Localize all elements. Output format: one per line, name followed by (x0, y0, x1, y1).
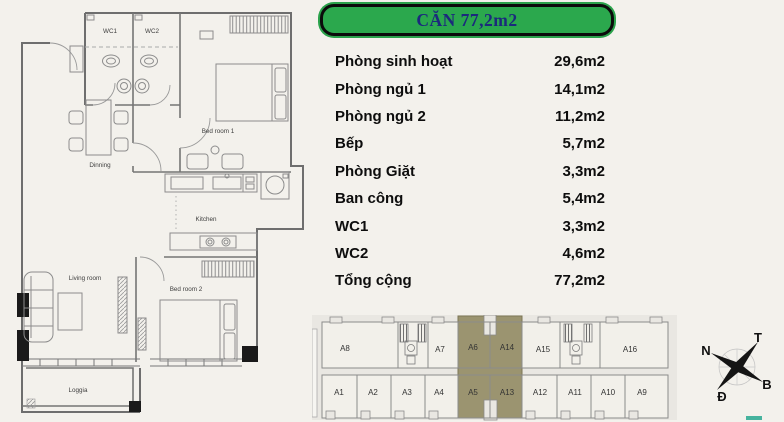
area-table: Phòng sinh hoạt 29,6m2 Phòng ngủ 1 14,1m… (322, 48, 614, 295)
unit-label-a5: A5 (468, 388, 478, 397)
room-label: Phòng ngủ 1 (322, 81, 426, 98)
room-area-value: 77,2m2 (554, 272, 614, 289)
unit-label-a6: A6 (468, 343, 478, 352)
apartment-floorplan: WC1 WC2 Bed room 1 Dinning Kitchen Livin… (0, 0, 310, 422)
room-label: Phòng Giặt (322, 163, 415, 180)
unit-label-a3: A3 (402, 388, 412, 397)
room-label-bedroom2: Bed room 2 (170, 286, 203, 293)
room-area-value: 5,7m2 (562, 135, 614, 152)
unit-title: CĂN 77,2m2 (416, 10, 517, 31)
compass-rose: N T B Đ (688, 325, 784, 422)
compass-label-d: Đ (717, 389, 726, 404)
unit-label-a12: A12 (533, 388, 548, 397)
compass-label-n: N (701, 343, 710, 358)
unit-label-a9: A9 (637, 388, 647, 397)
room-label-loggia: Loggia (69, 387, 88, 394)
room-label: Bếp (322, 135, 363, 152)
compass-label-t: T (754, 330, 762, 345)
room-area-value: 5,4m2 (562, 190, 614, 207)
room-label-wc1: WC1 (103, 28, 117, 35)
window-bands (22, 359, 242, 366)
room-area-value: 4,6m2 (562, 245, 614, 262)
area-table-row: Phòng Giặt 3,3m2 (322, 158, 614, 185)
unit-label-a8: A8 (340, 344, 350, 353)
area-table-row: Phòng sinh hoạt 29,6m2 (322, 48, 614, 75)
room-label-dinning: Dinning (89, 162, 111, 169)
area-table-row: WC2 4,6m2 (322, 240, 614, 267)
unit-title-badge: CĂN 77,2m2 (320, 4, 614, 36)
outer-walls (22, 13, 303, 412)
door-arcs (50, 43, 210, 281)
area-table-row: Tổng cộng 77,2m2 (322, 267, 614, 294)
unit-label-a16: A16 (623, 345, 638, 354)
unit-label-a10: A10 (601, 388, 616, 397)
room-label-kitchen: Kitchen (195, 216, 217, 223)
room-area-value: 3,3m2 (562, 218, 614, 235)
area-table-row: Phòng ngủ 1 14,1m2 (322, 75, 614, 102)
room-label-living-room: Living room (69, 275, 102, 282)
unit-label-a14: A14 (500, 343, 515, 352)
area-table-row: WC1 3,3m2 (322, 212, 614, 239)
area-table-row: Phòng ngủ 2 11,2m2 (322, 103, 614, 130)
room-area-value: 11,2m2 (555, 108, 614, 125)
room-area-value: 14,1m2 (554, 81, 614, 98)
room-label-bedroom1: Bed room 1 (202, 128, 235, 135)
compass-label-b: B (762, 377, 771, 392)
unit-label-a7: A7 (435, 345, 445, 354)
unit-label-a15: A15 (536, 345, 551, 354)
room-label: WC1 (322, 218, 368, 235)
unit-label-a11: A11 (568, 388, 582, 397)
unit-label-a1: A1 (334, 388, 344, 397)
room-label: WC2 (322, 245, 368, 262)
room-area-value: 3,3m2 (562, 163, 614, 180)
area-table-row: Ban công 5,4m2 (322, 185, 614, 212)
unit-label-a2: A2 (368, 388, 378, 397)
area-table-row: Bếp 5,7m2 (322, 130, 614, 157)
furniture (24, 15, 289, 361)
room-label: Phòng ngủ 2 (322, 108, 426, 125)
room-label-wc2: WC2 (145, 28, 159, 35)
loggia-hatch-detail (27, 399, 35, 408)
room-label: Phòng sinh hoạt (322, 53, 453, 70)
unit-label-a13: A13 (500, 388, 515, 397)
unit-label-a4: A4 (434, 388, 444, 397)
room-area-value: 29,6m2 (554, 53, 614, 70)
unit-a8 (322, 322, 398, 368)
room-label: Ban công (322, 190, 403, 207)
brochure-page: WC1 WC2 Bed room 1 Dinning Kitchen Livin… (0, 0, 784, 422)
building-keyplan: A8 A7 A6 A14 A15 A16 A1 A2 A3 A4 A5 A13 … (312, 315, 677, 422)
room-label: Tổng cộng (322, 272, 412, 289)
teal-mark (746, 416, 762, 420)
